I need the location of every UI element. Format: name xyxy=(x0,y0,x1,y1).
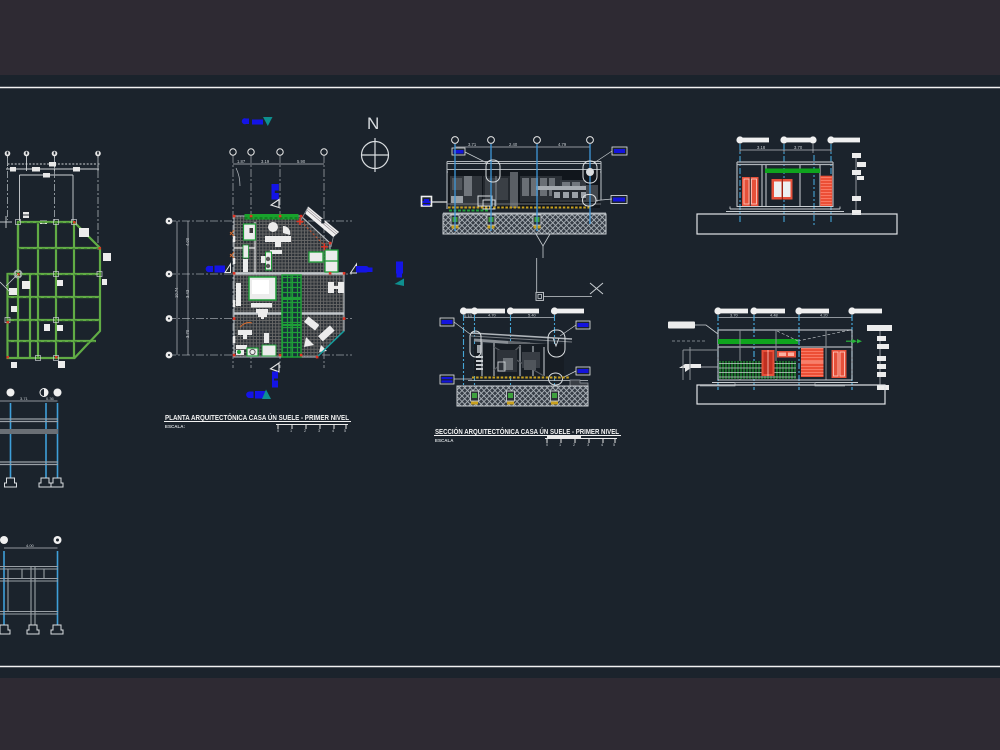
svg-text:3.18: 3.18 xyxy=(757,145,766,150)
svg-text:4.79: 4.79 xyxy=(558,142,567,147)
svg-text:2: 2 xyxy=(573,443,575,447)
svg-text:0.13: 0.13 xyxy=(464,313,473,318)
svg-text:3.70: 3.70 xyxy=(794,145,803,150)
svg-text:5.90: 5.90 xyxy=(297,159,306,164)
svg-text:3.71: 3.71 xyxy=(20,396,29,401)
svg-text:4.00: 4.00 xyxy=(26,543,35,548)
svg-text:3.70: 3.70 xyxy=(185,329,190,338)
svg-text:0: 0 xyxy=(277,429,279,433)
svg-text:10.74: 10.74 xyxy=(174,287,179,298)
svg-text:3.71: 3.71 xyxy=(468,142,477,147)
svg-text:0: 0 xyxy=(546,443,548,447)
svg-text:3: 3 xyxy=(318,429,320,433)
svg-text:1.87: 1.87 xyxy=(237,159,246,164)
svg-text:SECCIÓN ARQUITECTÓNICA CASA ÚN: SECCIÓN ARQUITECTÓNICA CASA ÚN SUELE - P… xyxy=(435,427,620,436)
svg-text:3: 3 xyxy=(587,443,589,447)
svg-text:5: 5 xyxy=(344,429,346,433)
svg-text:0.36: 0.36 xyxy=(46,396,55,401)
svg-text:2: 2 xyxy=(304,429,306,433)
svg-text:3.19: 3.19 xyxy=(261,159,270,164)
svg-text:N: N xyxy=(367,114,379,133)
svg-text:1: 1 xyxy=(290,429,292,433)
svg-text:1: 1 xyxy=(559,443,561,447)
svg-text:ESCALA: ESCALA xyxy=(435,438,454,443)
svg-text:ESCALA:: ESCALA: xyxy=(165,424,186,429)
svg-text:4.00: 4.00 xyxy=(185,237,190,246)
svg-text:4: 4 xyxy=(601,443,603,447)
svg-text:4: 4 xyxy=(332,429,334,433)
svg-text:4.70: 4.70 xyxy=(488,313,497,318)
svg-text:4.48: 4.48 xyxy=(770,313,779,318)
svg-text:4.20: 4.20 xyxy=(820,313,829,318)
svg-text:2.40: 2.40 xyxy=(509,142,518,147)
svg-text:3.70: 3.70 xyxy=(730,313,739,318)
svg-text:5.40: 5.40 xyxy=(528,313,537,318)
svg-text:5: 5 xyxy=(613,443,615,447)
svg-text:3.43: 3.43 xyxy=(185,289,190,298)
svg-text:PLANTA ARQUITECTÓNICA CASA ÚN: PLANTA ARQUITECTÓNICA CASA ÚN SUELE - PR… xyxy=(165,413,350,422)
